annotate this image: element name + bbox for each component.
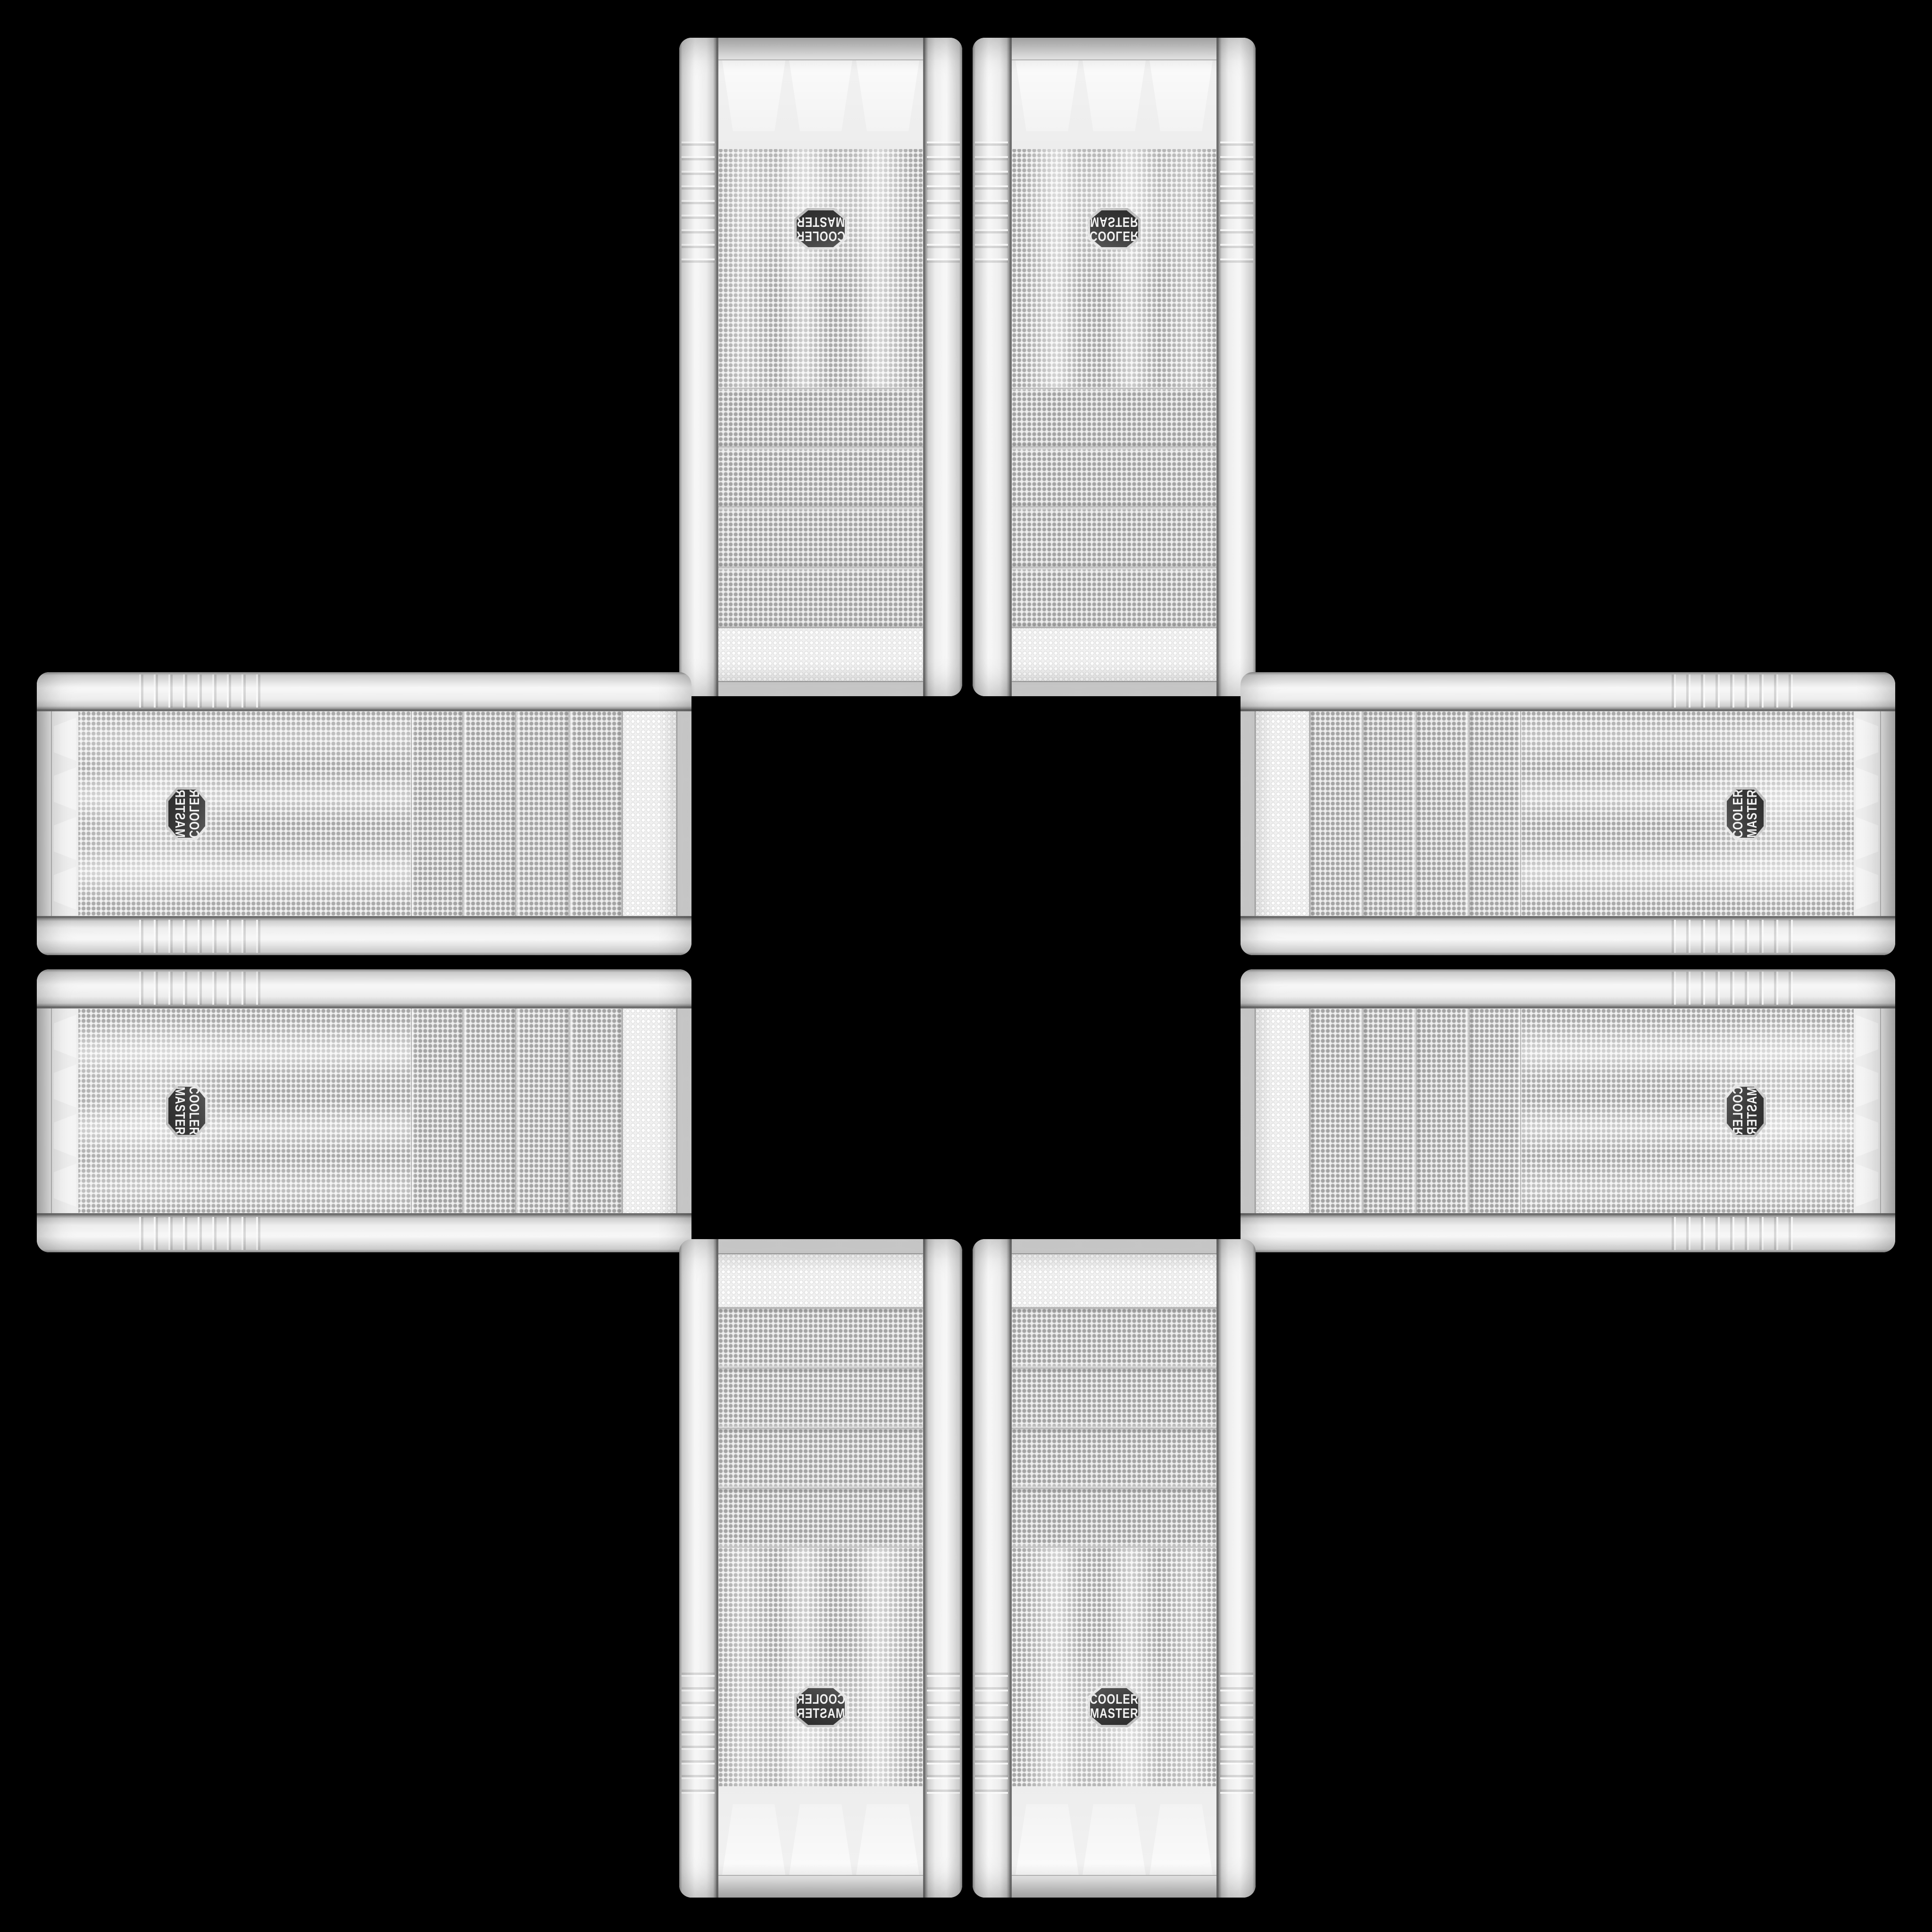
cooler-master-badge: COOLER MASTER	[794, 208, 847, 250]
badge-text: MASTER	[173, 790, 187, 838]
side-rail	[924, 38, 962, 696]
side-rail	[1241, 672, 1895, 710]
cooler-master-badge: COOLER MASTER	[794, 1686, 847, 1727]
foot-pads	[718, 60, 923, 135]
foot-pad	[1083, 60, 1146, 131]
top-bezel	[1012, 1239, 1216, 1254]
bay-cover	[1012, 1488, 1216, 1547]
bay-cover	[412, 711, 463, 916]
bay-cover	[718, 389, 923, 447]
foot-pad	[1083, 1804, 1146, 1875]
foot-bezel	[1854, 711, 1895, 916]
badge-face: COOLER MASTER	[1727, 1087, 1764, 1135]
bay-cover	[1012, 1368, 1216, 1426]
foot-pad	[54, 1164, 76, 1207]
foot-pad	[1856, 717, 1878, 761]
embossed-vent-band	[1256, 711, 1310, 916]
foot-pad	[789, 60, 852, 131]
bay-cover	[718, 1308, 923, 1366]
top-bezel	[1012, 681, 1216, 696]
side-rail	[1241, 969, 1895, 1007]
cooler-master-badge: COOLER MASTER	[1088, 1686, 1141, 1727]
foot-pad	[54, 817, 76, 860]
side-rail	[679, 38, 717, 696]
foot-pads	[1856, 1008, 1880, 1213]
side-rail	[37, 969, 691, 1007]
badge-text: MASTER	[1090, 215, 1139, 229]
side-rail	[37, 1215, 691, 1252]
bay-cover	[1012, 509, 1216, 567]
foot-pads	[52, 711, 76, 916]
front-mesh	[1521, 1008, 1854, 1213]
case-top-right: COOLER MASTER	[973, 38, 1256, 696]
bay-cover	[1310, 1008, 1361, 1213]
foot-pad	[1016, 1804, 1079, 1875]
embossed-vent-band	[622, 711, 676, 916]
foot-bezel	[37, 1008, 78, 1213]
side-rail	[924, 1239, 962, 1898]
bay-cover	[1012, 389, 1216, 447]
front-panel: COOLER MASTER	[37, 710, 691, 917]
foot-pad	[1856, 1015, 1878, 1058]
foot-pad	[1016, 60, 1079, 131]
bay-cover	[1012, 449, 1216, 507]
bay-cover	[718, 1368, 923, 1426]
foot-pads	[718, 1800, 923, 1875]
bay-cover	[571, 1008, 622, 1213]
case-left-bottom: COOLER MASTER	[37, 969, 691, 1252]
bezel-lip	[718, 1875, 923, 1898]
foot-pads	[1012, 1800, 1216, 1875]
foot-pad	[1856, 817, 1878, 860]
side-rail	[37, 917, 691, 955]
foot-pad	[54, 1015, 76, 1058]
bezel-lip	[1012, 38, 1216, 60]
embossed-vent-band	[1012, 627, 1216, 681]
foot-bezel	[37, 711, 78, 916]
bay-cover	[1469, 711, 1520, 916]
front-panel: COOLER MASTER	[1010, 1239, 1218, 1898]
foot-pad	[1856, 1064, 1878, 1108]
bay-cover	[518, 1008, 569, 1213]
cooler-master-badge: COOLER MASTER	[166, 1084, 208, 1137]
case-top-left: COOLER MASTER	[679, 38, 962, 696]
bay-cover	[718, 1428, 923, 1487]
embossed-vent-band	[718, 1254, 923, 1308]
side-rail	[1241, 1215, 1895, 1252]
foot-pad	[856, 1804, 919, 1875]
bay-cover	[1363, 1008, 1414, 1213]
top-bezel	[718, 1239, 923, 1254]
foot-bezel	[1854, 1008, 1895, 1213]
bay-cover	[465, 711, 516, 916]
top-bezel	[676, 711, 691, 916]
bezel-lip	[37, 711, 52, 916]
foot-pad	[54, 1064, 76, 1108]
foot-pad	[789, 1804, 852, 1875]
bay-cover	[718, 449, 923, 507]
foot-bezel	[718, 38, 923, 149]
drive-bay-covers	[1012, 388, 1216, 627]
foot-pad	[1856, 1164, 1878, 1207]
foot-pad	[1149, 1804, 1213, 1875]
foot-pad	[54, 866, 76, 910]
front-panel: COOLER MASTER	[717, 1239, 924, 1898]
bay-cover	[1469, 1008, 1520, 1213]
bay-cover	[1363, 711, 1414, 916]
cooler-master-badge: COOLER MASTER	[166, 787, 208, 840]
badge-text: MASTER	[173, 1087, 187, 1135]
foot-pad	[1856, 866, 1878, 910]
front-panel: COOLER MASTER	[1241, 1007, 1895, 1215]
foot-bezel	[718, 1786, 923, 1898]
foot-pad	[856, 60, 919, 131]
top-bezel	[1241, 1008, 1256, 1213]
bay-cover	[1012, 569, 1216, 627]
bay-cover	[412, 1008, 463, 1213]
foot-pad	[722, 1804, 785, 1875]
badge-text: COOLER	[1090, 1692, 1139, 1707]
foot-pad	[54, 767, 76, 810]
badge-text: MASTER	[1745, 1087, 1759, 1135]
bezel-lip	[37, 1008, 52, 1213]
embossed-vent-band	[1256, 1008, 1310, 1213]
embossed-vent-band	[1012, 1254, 1216, 1308]
badge-text: COOLER	[187, 789, 201, 838]
badge-face: COOLER MASTER	[797, 1688, 845, 1725]
side-rail	[37, 672, 691, 710]
foot-bezel	[1012, 38, 1216, 149]
side-rail	[973, 1239, 1010, 1898]
badge-text: MASTER	[1090, 1707, 1139, 1721]
badge-face: COOLER MASTER	[1090, 1688, 1138, 1725]
bay-cover	[1416, 711, 1467, 916]
bay-cover	[718, 1488, 923, 1547]
case-right-top: COOLER MASTER	[1241, 672, 1895, 955]
product-collage: COOLER MASTER	[0, 0, 1932, 1932]
badge-text: COOLER	[1731, 1086, 1745, 1135]
badge-face: COOLER MASTER	[1727, 790, 1764, 838]
foot-pad	[1149, 60, 1213, 131]
foot-pads	[52, 1008, 76, 1213]
top-bezel	[1241, 711, 1256, 916]
case-bottom-left: COOLER MASTER	[679, 1239, 962, 1898]
drive-bay-covers	[1310, 1008, 1521, 1213]
front-mesh	[1012, 1548, 1216, 1786]
side-rail	[1218, 1239, 1256, 1898]
front-mesh	[1521, 711, 1854, 916]
bezel-lip	[718, 38, 923, 60]
cooler-master-badge: COOLER MASTER	[1724, 1084, 1766, 1137]
front-panel: COOLER MASTER	[1010, 38, 1218, 696]
badge-text: COOLER	[796, 229, 845, 243]
badge-text: MASTER	[797, 215, 845, 229]
case-right-bottom: COOLER MASTER	[1241, 969, 1895, 1252]
cooler-master-badge: COOLER MASTER	[1724, 787, 1766, 840]
badge-face: COOLER MASTER	[168, 790, 205, 838]
bezel-lip	[1880, 1008, 1895, 1213]
front-mesh	[718, 1548, 923, 1786]
cooler-master-badge: COOLER MASTER	[1088, 208, 1141, 250]
side-rail	[1218, 38, 1256, 696]
badge-text: COOLER	[1731, 789, 1745, 838]
bay-cover	[518, 711, 569, 916]
top-bezel	[718, 681, 923, 696]
bay-cover	[571, 711, 622, 916]
badge-text: MASTER	[1745, 790, 1759, 838]
front-panel: COOLER MASTER	[37, 1007, 691, 1215]
foot-pad	[1856, 767, 1878, 810]
drive-bay-covers	[1310, 711, 1521, 916]
side-rail	[679, 1239, 717, 1898]
badge-face: COOLER MASTER	[1090, 210, 1138, 247]
drive-bay-covers	[1012, 1308, 1216, 1548]
side-rail	[1241, 917, 1895, 955]
foot-pad	[1856, 1114, 1878, 1158]
front-panel: COOLER MASTER	[717, 38, 924, 696]
badge-text: MASTER	[797, 1707, 845, 1721]
drive-bay-covers	[718, 388, 923, 627]
case-left-top: COOLER MASTER	[37, 672, 691, 955]
bezel-lip	[1012, 1875, 1216, 1898]
embossed-vent-band	[622, 1008, 676, 1213]
badge-text: COOLER	[187, 1086, 201, 1135]
drive-bay-covers	[411, 1008, 622, 1213]
drive-bay-covers	[411, 711, 622, 916]
bay-cover	[1012, 1428, 1216, 1487]
bay-cover	[1416, 1008, 1467, 1213]
front-mesh	[78, 1008, 411, 1213]
case-bottom-right: COOLER MASTER	[973, 1239, 1256, 1898]
bay-cover	[1012, 1308, 1216, 1366]
foot-pad	[54, 1114, 76, 1158]
bay-cover	[718, 569, 923, 627]
front-mesh	[1012, 149, 1216, 388]
bay-cover	[718, 509, 923, 567]
embossed-vent-band	[718, 627, 923, 681]
side-rail	[973, 38, 1010, 696]
front-mesh	[78, 711, 411, 916]
front-mesh	[718, 149, 923, 388]
foot-pad	[54, 717, 76, 761]
top-bezel	[676, 1008, 691, 1213]
badge-text: COOLER	[796, 1692, 845, 1707]
bay-cover	[1310, 711, 1361, 916]
drive-bay-covers	[718, 1308, 923, 1548]
bezel-lip	[1880, 711, 1895, 916]
badge-face: COOLER MASTER	[797, 210, 845, 247]
foot-pad	[722, 60, 785, 131]
bay-cover	[465, 1008, 516, 1213]
front-panel: COOLER MASTER	[1241, 710, 1895, 917]
foot-pads	[1856, 711, 1880, 916]
foot-bezel	[1012, 1786, 1216, 1898]
badge-face: COOLER MASTER	[168, 1087, 205, 1135]
foot-pads	[1012, 60, 1216, 135]
badge-text: COOLER	[1090, 229, 1139, 243]
